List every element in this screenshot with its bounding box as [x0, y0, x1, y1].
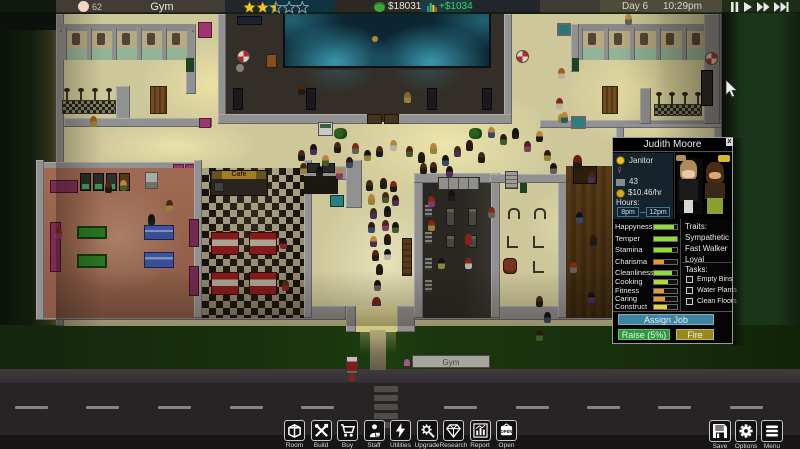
svg-text:OPEN: OPEN: [501, 429, 513, 434]
